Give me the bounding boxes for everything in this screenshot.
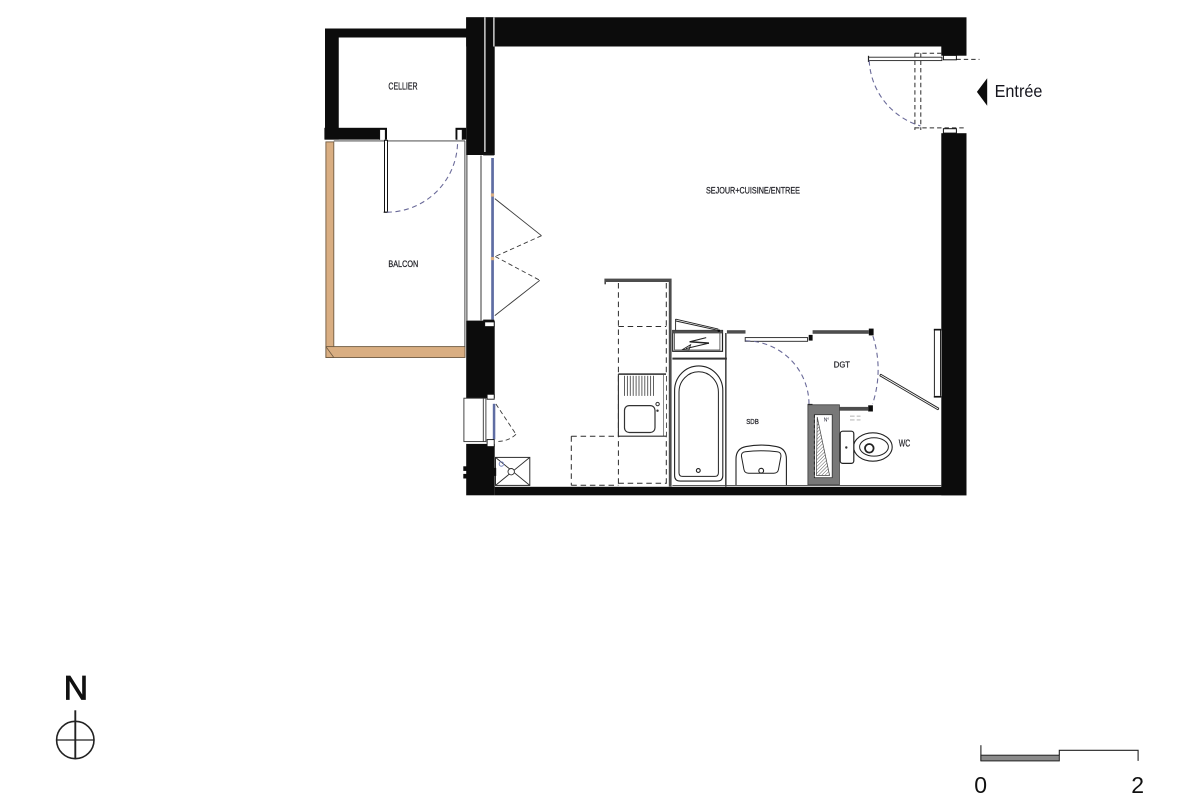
svg-text:CELLIER: CELLIER	[388, 81, 417, 93]
svg-text:WC: WC	[899, 437, 911, 449]
svg-text:Entrée: Entrée	[995, 81, 1043, 101]
svg-text:SEJOUR+CUISINE/ENTREE: SEJOUR+CUISINE/ENTREE	[706, 186, 800, 196]
svg-text:2: 2	[1131, 772, 1144, 798]
svg-text:N: N	[64, 670, 89, 708]
svg-text:0: 0	[974, 772, 987, 798]
svg-text:BALCON: BALCON	[388, 259, 418, 269]
svg-text:DGT: DGT	[834, 360, 851, 370]
svg-text:N°: N°	[824, 418, 830, 424]
svg-text:SDB: SDB	[746, 417, 759, 426]
